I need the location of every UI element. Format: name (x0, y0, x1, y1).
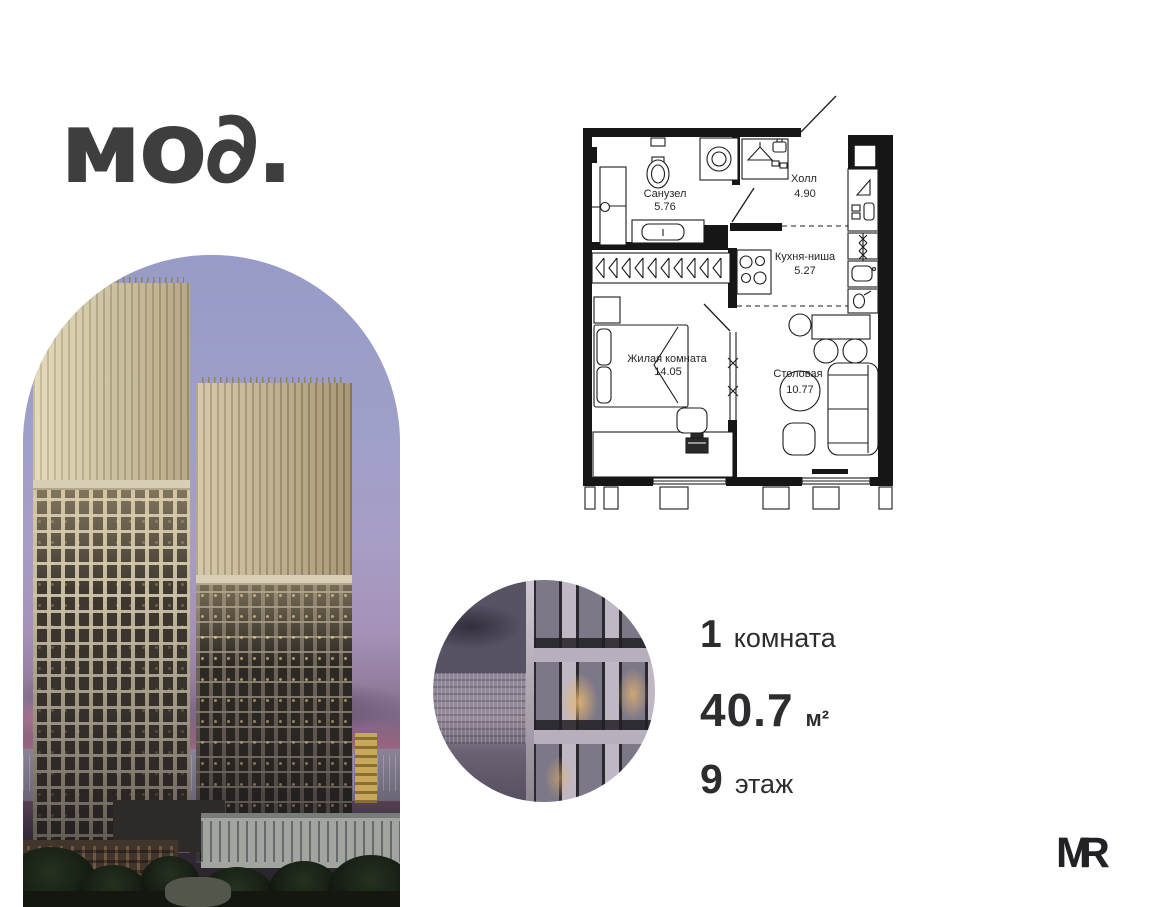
tower-right-crown (196, 383, 352, 575)
tower-left-crown (33, 283, 190, 480)
rooms-count-value: 1 (700, 613, 722, 657)
shoe-icon (852, 205, 860, 211)
room-area-dining: 10.77 (786, 384, 814, 396)
unit-info: 1 комната 40.7 м² 9 этаж (700, 598, 930, 828)
shoe-icon (780, 163, 787, 168)
facade-photo-city-view (433, 580, 527, 802)
dining-chair-icon (783, 423, 815, 455)
golden-building (355, 733, 377, 803)
floor-value: 9 (700, 756, 723, 803)
stool-icon (843, 339, 867, 363)
printer-icon (691, 433, 703, 438)
room-area-hall: 4.90 (794, 188, 815, 200)
round-chair-icon (789, 314, 811, 336)
hall-wardrobe (742, 139, 788, 179)
floor-plan: Санузел 5.76 Холл 4.90 Кухня-ниша 5.27 Ж… (580, 87, 896, 511)
mr-logo: MR (1056, 832, 1110, 875)
room-area-bathroom: 5.76 (654, 201, 675, 213)
room-label-kitchen: Кухня-ниша (775, 251, 835, 263)
toilet-icon (651, 138, 665, 146)
floor-label: этаж (735, 769, 793, 800)
room-area-living: 14.05 (654, 366, 682, 378)
road (165, 877, 231, 907)
facade-photo (433, 580, 655, 802)
room-label-hall: Холл (791, 173, 817, 185)
shaft (854, 145, 876, 167)
floor-plan-drawing (580, 87, 896, 511)
tower-left-band (33, 480, 190, 490)
tower-left-facade (33, 490, 190, 853)
closet-hangers (592, 253, 730, 283)
nightstand-icon (594, 297, 620, 323)
listing-card: { "brand": { "logo_text": "мо∂.", "mr_m"… (0, 0, 1152, 907)
area-row: 40.7 м² (700, 683, 829, 737)
rooms-count-row: 1 комната (700, 613, 836, 657)
stove-icon (737, 250, 771, 294)
towers-photo (23, 255, 400, 907)
tower-right-band (196, 575, 352, 585)
stool-icon (814, 339, 838, 363)
room-label-dining: Столовая (773, 368, 822, 380)
room-label-bathroom: Санузел (644, 188, 687, 200)
radiator-icon (601, 203, 610, 212)
tower-right (196, 383, 352, 863)
area-value: 40.7 (700, 683, 794, 737)
counter-table-icon (812, 315, 870, 339)
rooms-count-label: комната (734, 623, 836, 654)
shoe-icon (772, 161, 779, 166)
facade-corner-edge (526, 580, 534, 802)
suitcase-icon (773, 142, 786, 152)
brand-logo: мо∂. (60, 98, 291, 198)
glass-partition (728, 332, 738, 420)
room-area-kitchen: 5.27 (794, 265, 815, 277)
living-room-furniture (593, 297, 733, 477)
floor-row: 9 этаж (700, 756, 793, 803)
room-label-living: Жилая комната (627, 353, 706, 365)
tower-left (33, 283, 190, 853)
shoe-icon (852, 213, 860, 219)
appliance-column (848, 169, 878, 313)
boot-icon (864, 203, 874, 220)
desk-icon (593, 432, 733, 477)
area-unit: м² (806, 706, 830, 732)
chair-icon (677, 408, 707, 433)
mr-logo-r: R (1079, 829, 1110, 877)
